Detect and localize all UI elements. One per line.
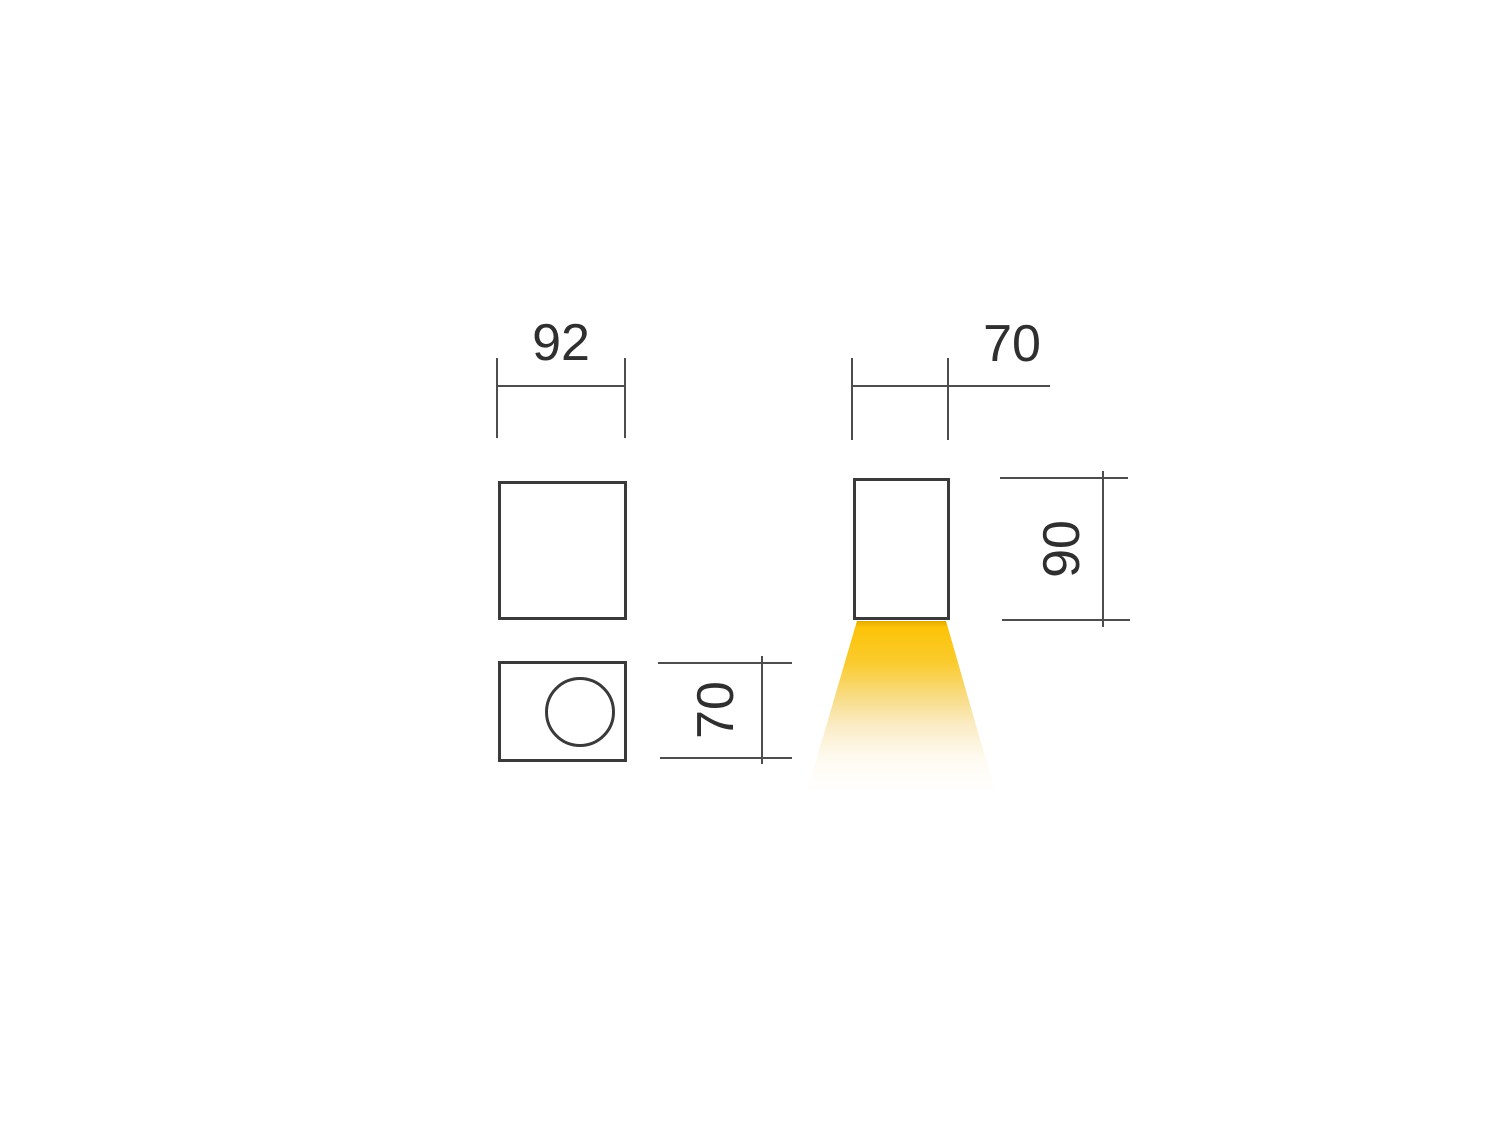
lens-circle bbox=[545, 677, 615, 747]
extension-line bbox=[1002, 619, 1130, 621]
dimension-label-front-width: 92 bbox=[497, 316, 625, 370]
extension-line bbox=[851, 358, 853, 440]
extension-line bbox=[1000, 477, 1128, 479]
extension-line bbox=[624, 358, 626, 438]
extension-line bbox=[658, 662, 792, 664]
extension-line bbox=[947, 358, 949, 440]
extension-line bbox=[660, 757, 792, 759]
side-view-outline bbox=[853, 478, 950, 620]
dimension-label-side-width: 70 bbox=[952, 317, 1072, 371]
dimension-line bbox=[497, 385, 625, 387]
light-beam-cone bbox=[804, 621, 998, 795]
dimension-line bbox=[852, 385, 1050, 387]
dimension-label-side-height: 90 bbox=[1035, 520, 1089, 578]
dimension-line bbox=[761, 656, 763, 764]
dimension-label-bottom-depth: 70 bbox=[689, 681, 743, 739]
front-view-outline bbox=[498, 481, 627, 620]
dimension-line bbox=[1102, 471, 1104, 627]
technical-drawing-canvas: 92 70 70 90 bbox=[0, 0, 1500, 1125]
extension-line bbox=[496, 358, 498, 438]
